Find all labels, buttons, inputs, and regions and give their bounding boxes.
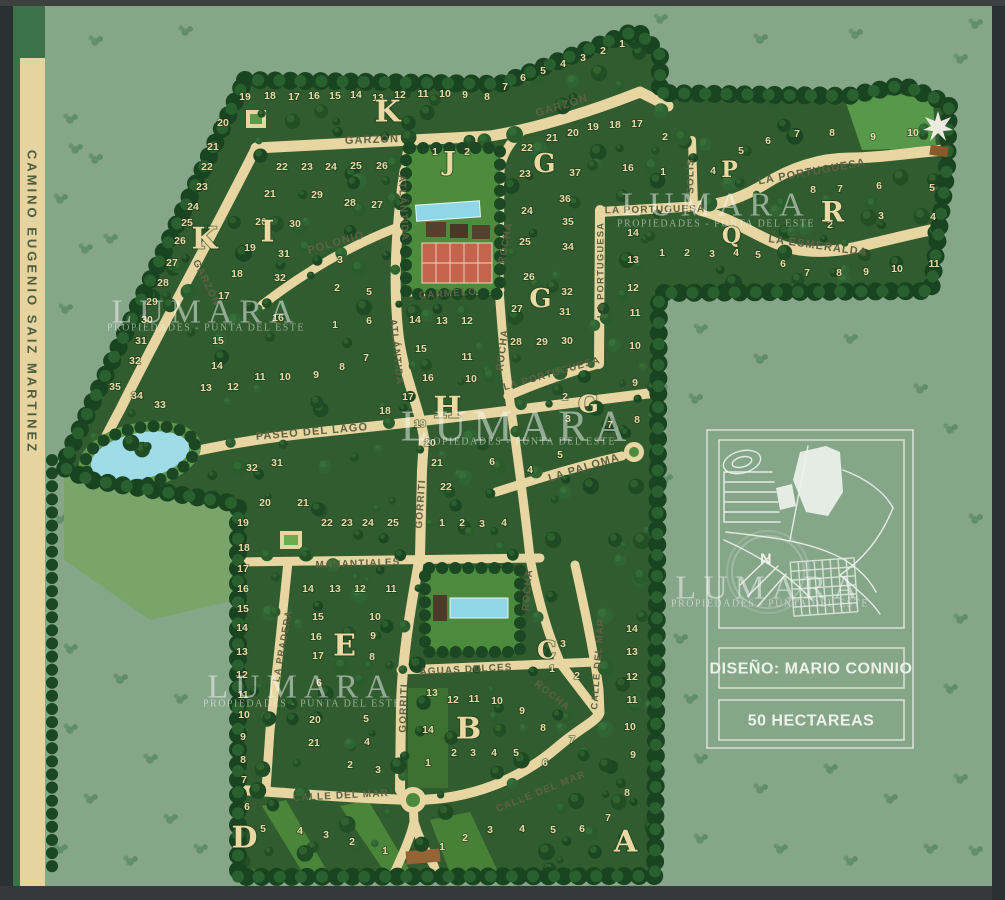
lot-number: 13 (329, 583, 341, 595)
tree-highlight (590, 320, 596, 326)
tree-highlight (349, 177, 356, 184)
tree-highlight (416, 838, 424, 846)
tree-highlight (401, 752, 406, 757)
lot-number: 1 (619, 38, 625, 50)
tree-highlight (638, 611, 644, 617)
tree-highlight (416, 727, 421, 732)
lot-number: 14 (350, 89, 362, 101)
tree-highlight (485, 370, 492, 377)
tree-highlight (392, 265, 397, 270)
lot-number: 14 (626, 623, 638, 635)
tree-highlight (647, 232, 652, 237)
lot-number: 8 (339, 361, 345, 373)
tree-highlight (386, 661, 390, 665)
lot-number: 27 (511, 303, 523, 315)
tree-highlight (303, 218, 307, 222)
lot-number: 23 (519, 168, 531, 180)
tree-highlight (841, 265, 846, 270)
lot-number: 31 (559, 306, 571, 318)
tree-highlight (585, 827, 593, 835)
lot-number: 7 (605, 812, 611, 824)
tree-highlight (929, 174, 936, 181)
tree-highlight (389, 498, 393, 502)
tree-highlight (644, 527, 648, 531)
tree-highlight (262, 550, 268, 556)
lot-number: 7 (794, 128, 800, 140)
lot-number: 32 (129, 355, 141, 367)
club-building (472, 225, 490, 239)
club-area-bottom (425, 568, 520, 652)
tree-highlight (266, 847, 271, 852)
lot-number: 4 (930, 211, 936, 223)
tree-highlight (421, 360, 427, 366)
lumara-watermark-subtitle: PROPIEDADES - PUNTA DEL ESTE (418, 437, 616, 448)
tree-highlight (256, 138, 260, 142)
tree-highlight (495, 724, 502, 731)
lot-number: 26 (174, 235, 186, 247)
lot-number: 12 (626, 671, 638, 683)
lot-number: 17 (288, 91, 300, 103)
section-letter-A: A (613, 825, 638, 860)
compass-n-label: N (760, 552, 772, 569)
lot-number: 34 (562, 241, 574, 253)
lot-number: 8 (484, 91, 490, 103)
lot-number: 25 (387, 517, 399, 529)
left-green-top (13, 0, 45, 58)
lot-number: 25 (350, 160, 362, 172)
lot-number: 6 (489, 456, 495, 468)
lot-number: 3 (375, 764, 381, 776)
tree-highlight (831, 269, 835, 273)
lot-number: 10 (279, 371, 291, 383)
tree-highlight (431, 95, 437, 101)
lot-number: 35 (562, 216, 574, 228)
tree-highlight (375, 445, 379, 449)
lumara-watermark-subtitle: PROPIEDADES - PUNTA DEL ESTE (671, 599, 869, 610)
lot-number: 1 (425, 757, 431, 769)
tree-highlight (579, 750, 585, 756)
lot-number: 22 (321, 517, 333, 529)
section-letter-J: J (441, 147, 456, 177)
tree-highlight (209, 471, 214, 476)
tree-highlight (438, 792, 442, 796)
lot-number: 12 (354, 583, 366, 595)
lot-number: 15 (329, 90, 341, 102)
lot-number: 18 (264, 90, 276, 102)
lot-number: 8 (369, 651, 375, 663)
section-letter-I: I (260, 215, 275, 250)
section-letter-K: K (374, 95, 401, 130)
lot-number: 4 (560, 58, 566, 70)
tree-highlight (616, 81, 621, 86)
lot-number: 9 (630, 749, 636, 761)
lot-number: 5 (929, 182, 935, 194)
tree-highlight (312, 397, 318, 403)
tree-highlight (615, 555, 621, 561)
tree-highlight (234, 462, 241, 469)
lot-number: 5 (366, 286, 372, 298)
tree-highlight (496, 542, 502, 548)
lot-number: 15 (312, 611, 324, 623)
tree-highlight (617, 779, 622, 784)
tree-highlight (411, 658, 419, 666)
tree-highlight (652, 174, 660, 182)
tree-highlight (530, 229, 534, 233)
lot-number: 11 (254, 371, 265, 383)
tree-highlight (299, 191, 304, 196)
tree-highlight (557, 803, 563, 809)
lot-number: 13 (426, 687, 438, 699)
tree-highlight (383, 177, 387, 181)
tree-highlight (422, 310, 428, 316)
lot-number: 6 (244, 801, 250, 813)
lumara-watermark-subtitle: PROPIEDADES - PUNTA DEL ESTE (203, 699, 401, 710)
lot-number: 10 (465, 373, 477, 385)
tree-highlight (520, 724, 524, 728)
tree-highlight (895, 171, 903, 179)
club-building (450, 224, 468, 238)
tree-highlight (513, 354, 518, 359)
tree-highlight (384, 418, 390, 424)
tree-highlight (727, 275, 735, 283)
tree-highlight (547, 533, 555, 541)
lot-number: 13 (627, 254, 639, 266)
lot-number: 19 (239, 91, 251, 103)
tree-highlight (603, 791, 607, 795)
club-building (433, 595, 447, 621)
lot-number: 36 (559, 193, 571, 205)
tree-highlight (568, 75, 575, 82)
lot-number: 15 (212, 335, 224, 347)
section-letter-K: K (191, 222, 218, 257)
lot-number: 28 (510, 336, 522, 348)
lot-number: 19 (587, 121, 599, 133)
lot-number: 3 (337, 254, 343, 266)
tree-highlight (400, 666, 404, 670)
tree-highlight (570, 198, 576, 204)
designer-label: DISEÑO: MARIO CONNIO (710, 658, 913, 678)
tree-highlight (920, 124, 925, 129)
tree-highlight (308, 272, 312, 276)
tree-highlight (547, 591, 553, 597)
lot-number: 20 (259, 497, 271, 509)
lot-number: 10 (907, 127, 919, 139)
tree-highlight (396, 550, 402, 556)
lot-number: 11 (626, 694, 637, 706)
tree-highlight (580, 371, 586, 377)
lot-number: 10 (439, 88, 451, 100)
tree-highlight (557, 723, 562, 728)
lot-number: 37 (569, 167, 581, 179)
tree-highlight (610, 534, 617, 541)
lot-number: 22 (276, 161, 288, 173)
tree-highlight (540, 845, 548, 853)
lot-number: 32 (246, 462, 258, 474)
lot-number: 21 (431, 457, 443, 469)
section-letter-P: P (721, 157, 739, 183)
lot-number: 24 (325, 161, 337, 173)
lot-number: 16 (622, 162, 634, 174)
lot-number: 10 (629, 340, 641, 352)
tree-highlight (465, 136, 471, 142)
section-letter-D: D (231, 821, 258, 856)
lot-number: 21 (546, 132, 558, 144)
tree-highlight (916, 209, 924, 217)
lot-number: 7 (363, 352, 369, 364)
lot-number: 9 (313, 369, 319, 381)
bottom-dark-edge (0, 886, 1005, 900)
lot-number: 14 (409, 314, 421, 326)
tree-highlight (506, 179, 514, 187)
lot-number: 13 (236, 646, 248, 658)
tree-highlight (560, 487, 567, 494)
lot-number: 17 (631, 118, 643, 130)
lot-number: 10 (491, 695, 503, 707)
lot-number: 31 (278, 248, 290, 260)
tree-highlight (418, 697, 425, 704)
lot-number: 26 (523, 271, 535, 283)
section-letter-G: G (533, 149, 556, 179)
tree-highlight (655, 104, 662, 111)
tree-highlight (700, 139, 707, 146)
tree-highlight (380, 534, 385, 539)
section-letter-E: E (333, 629, 357, 664)
lot-number: 7 (241, 774, 247, 786)
lot-number: 30 (289, 218, 301, 230)
park-square-green (284, 535, 298, 545)
tree-highlight (128, 410, 132, 414)
camino-road-label: CAMINO EUGENIO SAIZ MARTINEZ (25, 150, 40, 454)
tree-highlight (879, 222, 883, 226)
roundabout-green (406, 793, 420, 807)
lot-number: 22 (440, 481, 452, 493)
tree-highlight (288, 714, 294, 720)
lot-number: 1 (439, 517, 445, 529)
tree-highlight (440, 805, 448, 813)
lot-number: 5 (540, 65, 546, 77)
tree-highlight (652, 147, 656, 151)
lot-number: 20 (309, 714, 321, 726)
lot-number: 3 (709, 248, 715, 260)
tree-highlight (392, 759, 400, 767)
lot-number: 6 (780, 258, 786, 270)
tree-highlight (492, 767, 499, 774)
lot-number: 5 (363, 713, 369, 725)
lot-number: 2 (451, 747, 457, 759)
lot-number: 5 (755, 249, 761, 261)
lot-number: 6 (876, 180, 882, 192)
tree-highlight (313, 256, 318, 261)
tree-highlight (346, 739, 352, 745)
lot-number: 7 (804, 267, 810, 279)
area-label: 50 HECTAREAS (748, 713, 875, 730)
lot-number: 1 (382, 845, 388, 857)
pool (450, 598, 508, 618)
tree-highlight (508, 550, 514, 556)
tree-highlight (353, 261, 361, 269)
lot-number: 3 (470, 747, 476, 759)
lot-number: 2 (334, 282, 340, 294)
tree-highlight (621, 542, 625, 546)
tree-highlight (570, 794, 578, 802)
tree-highlight (434, 305, 439, 310)
tree-highlight (385, 809, 390, 814)
lot-number: 13 (200, 382, 212, 394)
lot-number: 16 (308, 90, 320, 102)
tree-highlight (491, 528, 495, 532)
tree-highlight (183, 285, 191, 293)
lot-number: 7 (837, 183, 843, 195)
screenshot-root: GARZÓNGARZÓNGARZÓNPOLONIOATLÁNTIDAATLÁNT… (0, 0, 1005, 900)
lot-number: 8 (829, 127, 835, 139)
lot-number: 20 (567, 127, 579, 139)
tree-highlight (717, 266, 721, 270)
tree-highlight (451, 500, 457, 506)
tree-highlight (489, 687, 493, 691)
lot-number: 2 (347, 759, 353, 771)
lot-number: 21 (308, 737, 320, 749)
tree-highlight (676, 131, 684, 139)
lot-number: 12 (227, 381, 239, 393)
tree-highlight (255, 150, 262, 157)
tree-highlight (383, 252, 388, 257)
lumara-watermark-subtitle: PROPIEDADES - PUNTA DEL ESTE (617, 219, 815, 230)
tree-highlight (358, 301, 366, 309)
tree-highlight (593, 66, 601, 74)
tree-highlight (635, 395, 639, 399)
tree-highlight (821, 236, 825, 240)
tree-highlight (403, 131, 411, 139)
tree-highlight (396, 301, 400, 305)
tree-highlight (345, 226, 351, 232)
tree-highlight (466, 527, 471, 532)
lot-number: 12 (447, 694, 459, 706)
lot-number: 28 (157, 277, 169, 289)
tree-highlight (458, 379, 462, 383)
street-label: GARZÓN (345, 132, 400, 147)
tree-highlight (585, 479, 593, 487)
lot-number: 8 (624, 787, 630, 799)
tree-highlight (259, 110, 263, 114)
lot-number: 9 (462, 89, 468, 101)
lot-number: 23 (196, 181, 208, 193)
tree-highlight (334, 127, 339, 132)
left-green-strip (13, 0, 20, 900)
lot-number: 4 (527, 464, 533, 476)
lot-number: 2 (349, 836, 355, 848)
tree-highlight (400, 621, 406, 627)
tree-highlight (254, 385, 258, 389)
tree-highlight (487, 489, 492, 494)
tree-highlight (590, 846, 597, 853)
lot-number: 15 (415, 343, 427, 355)
tree-highlight (216, 351, 223, 358)
lot-number: 19 (244, 242, 256, 254)
lot-number: 12 (461, 315, 473, 327)
lot-number: 33 (154, 399, 166, 411)
lot-number: 22 (521, 142, 533, 154)
tree-highlight (599, 722, 607, 730)
tree-highlight (490, 712, 495, 717)
tree-highlight (333, 118, 337, 122)
tree-highlight (620, 380, 624, 384)
lot-number: 24 (187, 201, 199, 213)
lot-number: 18 (238, 542, 250, 554)
lot-number: 8 (240, 754, 246, 766)
lot-number: 16 (310, 631, 322, 643)
lot-number: 11 (417, 88, 428, 100)
tree-highlight (365, 577, 369, 581)
tree-highlight (295, 619, 300, 624)
tree-highlight (446, 732, 453, 739)
tree-highlight (272, 573, 277, 578)
lot-number: 16 (237, 583, 249, 595)
lot-number: 3 (878, 210, 884, 222)
lot-number: 3 (580, 52, 586, 64)
lot-number: 6 (520, 72, 526, 84)
lot-number: 4 (364, 736, 370, 748)
top-dark-edge (0, 0, 1005, 6)
section-letter-R: R (821, 196, 845, 229)
tree-highlight (287, 115, 295, 123)
lot-number: 9 (632, 377, 638, 389)
tree-highlight (617, 678, 624, 685)
lot-number: 21 (264, 188, 276, 200)
lot-number: 10 (238, 709, 250, 721)
lot-number: 11 (385, 583, 396, 595)
lot-number: 4 (491, 747, 497, 759)
tree-highlight (410, 361, 415, 366)
lot-number: 23 (341, 517, 353, 529)
lot-number: 29 (311, 189, 323, 201)
tree-highlight (439, 451, 443, 455)
tree-highlight (422, 106, 429, 113)
tree-highlight (867, 198, 874, 205)
right-dark-edge (992, 0, 1005, 900)
lot-number: 9 (519, 705, 525, 717)
lot-number: 19 (237, 517, 249, 529)
tree-highlight (354, 530, 359, 535)
lot-number: 24 (521, 205, 533, 217)
tree-highlight (458, 306, 465, 313)
lot-number: 8 (810, 184, 816, 196)
tree-highlight (251, 783, 259, 791)
tree-highlight (256, 762, 264, 770)
lot-number: 9 (863, 266, 869, 278)
tree-highlight (862, 211, 870, 219)
lot-number: 3 (487, 824, 493, 836)
lot-number: 31 (271, 457, 283, 469)
lot-number: 4 (519, 823, 525, 835)
lot-number: 4 (710, 165, 716, 177)
tree-highlight (408, 306, 416, 314)
tree-highlight (427, 520, 431, 524)
lot-number: 11 (461, 351, 472, 363)
lot-number: 5 (550, 824, 556, 836)
lot-number: 1 (332, 319, 338, 331)
tree-highlight (224, 398, 228, 402)
tree-highlight (619, 289, 625, 295)
lot-number: 2 (684, 247, 690, 259)
tree-highlight (793, 274, 800, 281)
masterplan-map: GARZÓNGARZÓNGARZÓNPOLONIOATLÁNTIDAATLÁNT… (0, 0, 1005, 900)
lot-number: 21 (297, 497, 309, 509)
tree-highlight (372, 840, 376, 844)
tree-highlight (609, 339, 616, 346)
lot-number: 11 (629, 307, 640, 319)
section-letter-C: C (537, 636, 557, 665)
tree-highlight (387, 157, 395, 165)
